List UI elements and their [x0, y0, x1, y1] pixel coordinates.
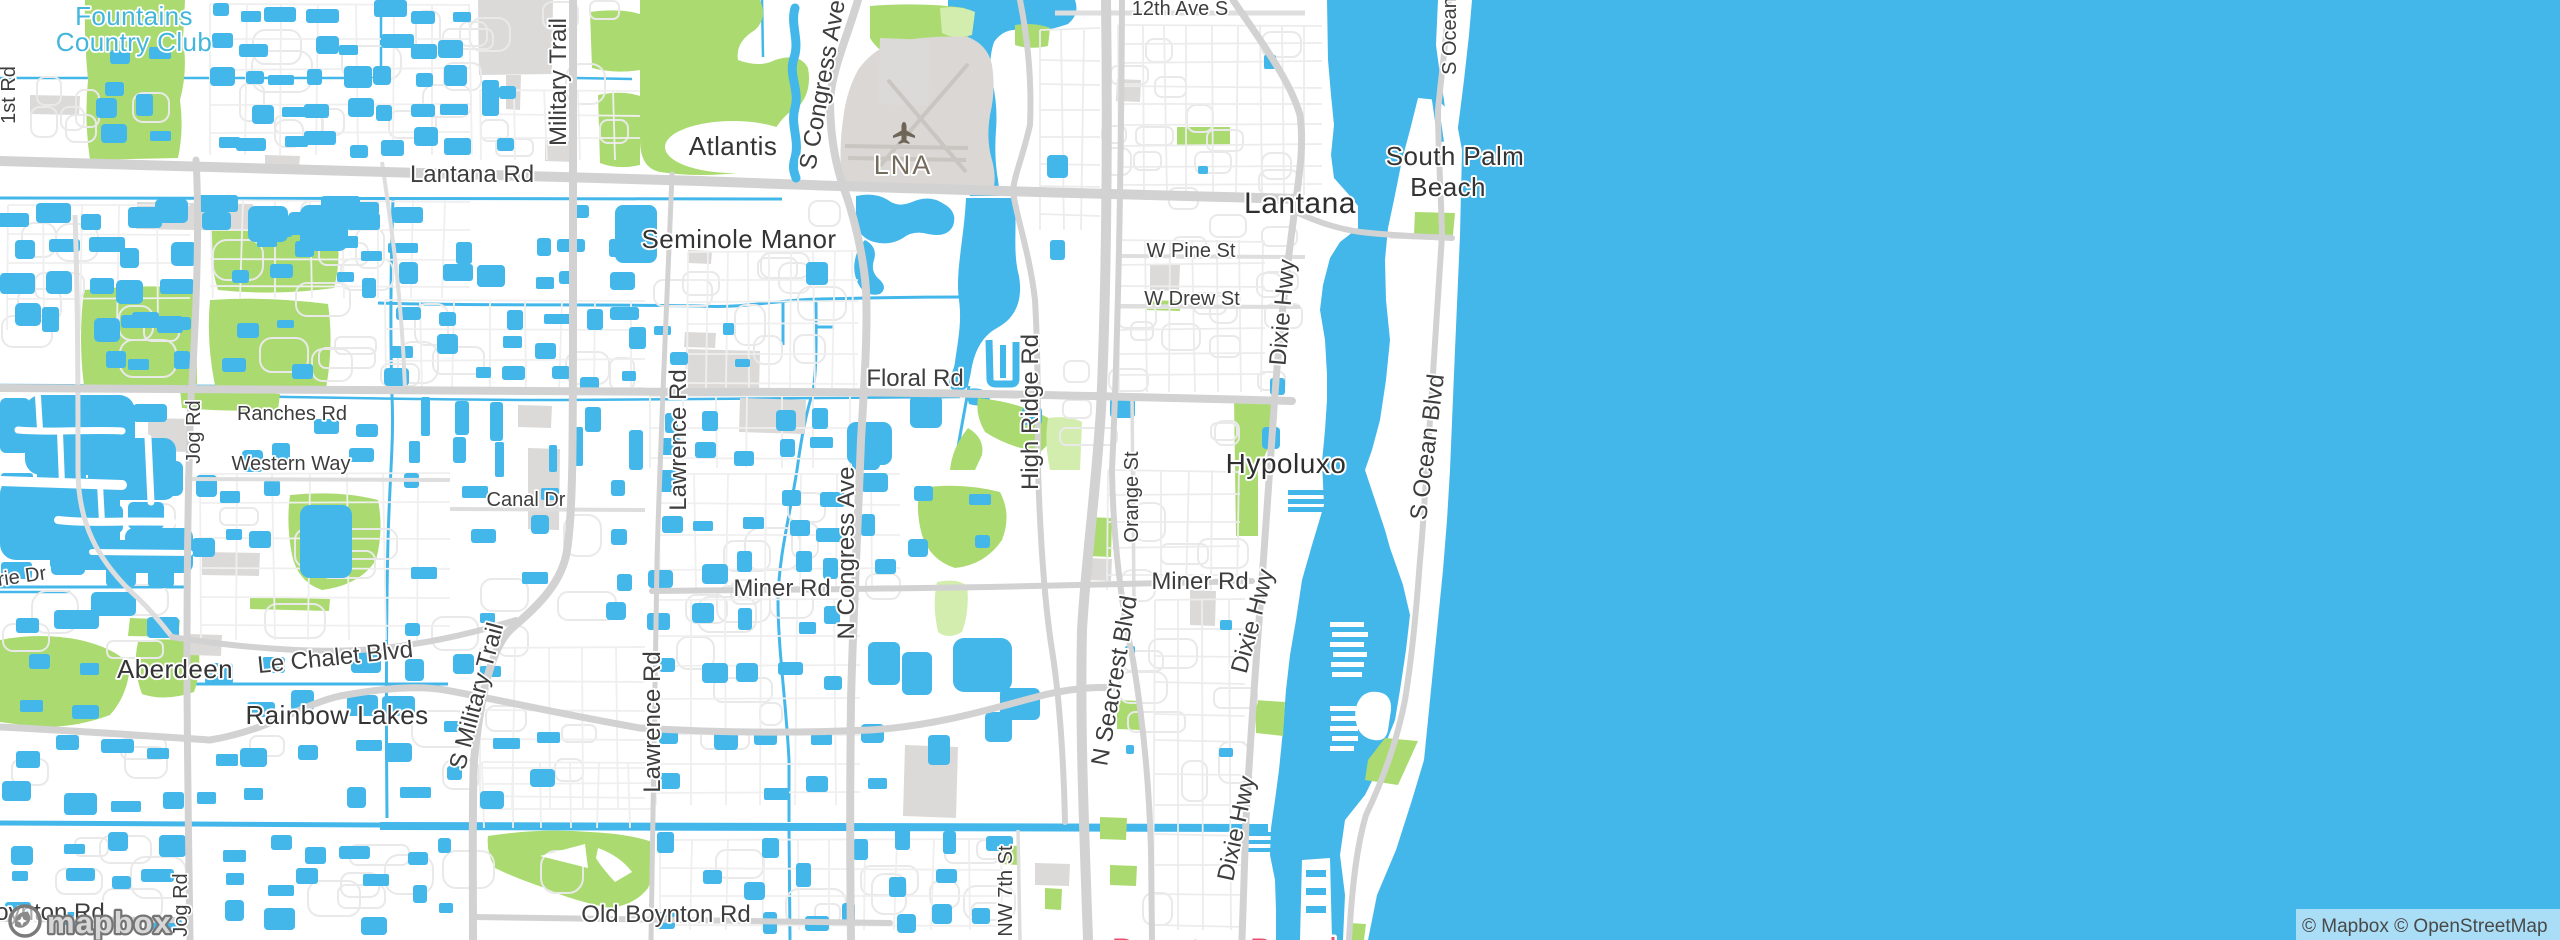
svg-text:Lantana Rd: Lantana Rd [410, 161, 534, 188]
svg-text:Ranches Rd: Ranches Rd [237, 403, 347, 425]
svg-text:High Ridge Rd: High Ridge Rd [1017, 334, 1044, 490]
svg-text:Country Club: Country Club [56, 27, 213, 57]
svg-text:W Pine St: W Pine St [1147, 240, 1236, 262]
svg-text:Boynton Beach: Boynton Beach [1111, 932, 1348, 940]
svg-text:Military Trail: Military Trail [545, 18, 572, 146]
svg-text:Miner Rd: Miner Rd [1151, 568, 1248, 595]
svg-text:Jog Rd: Jog Rd [170, 873, 192, 936]
svg-text:Lawrence Rd: Lawrence Rd [665, 369, 692, 510]
svg-text:Floral Rd: Floral Rd [866, 365, 963, 392]
svg-text:1st Rd: 1st Rd [0, 66, 20, 124]
svg-text:Miner Rd: Miner Rd [733, 575, 830, 602]
svg-text:LNA: LNA [874, 150, 933, 180]
svg-text:W Drew St: W Drew St [1144, 288, 1240, 310]
svg-text:© Mapbox © OpenStreetMap: © Mapbox © OpenStreetMap [2302, 916, 2548, 937]
svg-text:Aberdeen: Aberdeen [117, 654, 233, 684]
svg-text:Beach: Beach [1410, 172, 1486, 202]
svg-text:Hypoluxo: Hypoluxo [1226, 448, 1347, 479]
svg-text:Atlantis: Atlantis [689, 131, 777, 161]
svg-text:Jog Rd: Jog Rd [183, 400, 205, 463]
svg-text:South Palm: South Palm [1386, 141, 1524, 171]
svg-text:Orange St: Orange St [1121, 451, 1143, 543]
svg-text:Canal Dr: Canal Dr [487, 489, 566, 511]
svg-text:S Ocean: S Ocean [1439, 0, 1461, 75]
svg-text:Western Way: Western Way [232, 453, 351, 475]
svg-text:N Congress Ave: N Congress Ave [833, 467, 860, 640]
svg-text:mapbox: mapbox [47, 905, 172, 940]
svg-text:Seminole Manor: Seminole Manor [642, 224, 837, 254]
svg-text:NW 7th St: NW 7th St [995, 845, 1017, 937]
svg-text:Old Boynton Rd: Old Boynton Rd [581, 901, 750, 928]
svg-text:Rainbow Lakes: Rainbow Lakes [246, 700, 429, 730]
svg-text:Lawrence Rd: Lawrence Rd [639, 651, 666, 792]
svg-text:12th Ave S: 12th Ave S [1132, 0, 1228, 20]
svg-text:Lantana: Lantana [1244, 187, 1356, 220]
